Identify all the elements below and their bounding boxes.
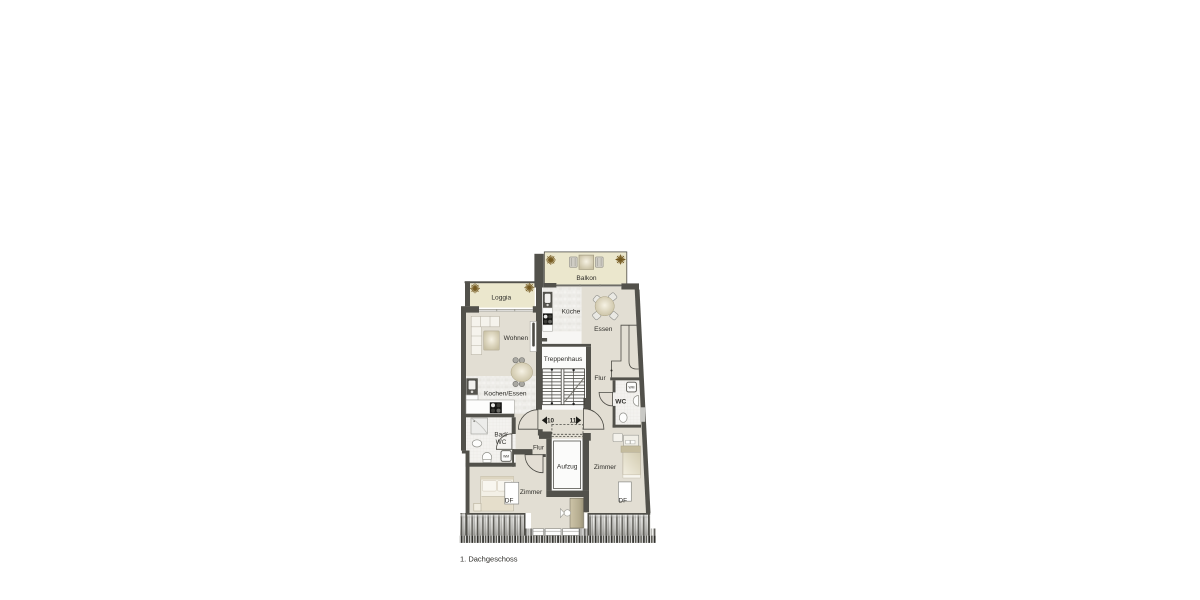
svg-text:Aufzug: Aufzug: [557, 463, 578, 470]
svg-text:DF: DF: [505, 498, 514, 505]
svg-text:Flur: Flur: [533, 445, 545, 452]
svg-text:Wohnen: Wohnen: [504, 335, 529, 342]
svg-text:Zimmer: Zimmer: [520, 489, 543, 496]
svg-text:Essen: Essen: [594, 326, 613, 333]
svg-text:Küche: Küche: [562, 308, 581, 315]
svg-text:WM: WM: [628, 385, 634, 389]
svg-text:Loggia: Loggia: [491, 295, 511, 302]
svg-text:Zimmer: Zimmer: [594, 464, 617, 471]
svg-text:WM: WM: [503, 455, 509, 459]
svg-text:Kochen/Essen: Kochen/Essen: [484, 391, 527, 398]
svg-text:DF: DF: [619, 497, 628, 504]
svg-text:Flur: Flur: [594, 375, 606, 382]
svg-text:11: 11: [570, 418, 577, 425]
svg-text:1. Dachgeschoss: 1. Dachgeschoss: [460, 555, 518, 564]
svg-text:WC: WC: [615, 399, 626, 406]
svg-text:Balkon: Balkon: [576, 275, 596, 282]
svg-text:10: 10: [547, 418, 555, 425]
svg-text:Bad/: Bad/: [494, 432, 507, 439]
svg-text:Treppenhaus: Treppenhaus: [544, 356, 583, 363]
svg-text:WC: WC: [496, 439, 507, 446]
